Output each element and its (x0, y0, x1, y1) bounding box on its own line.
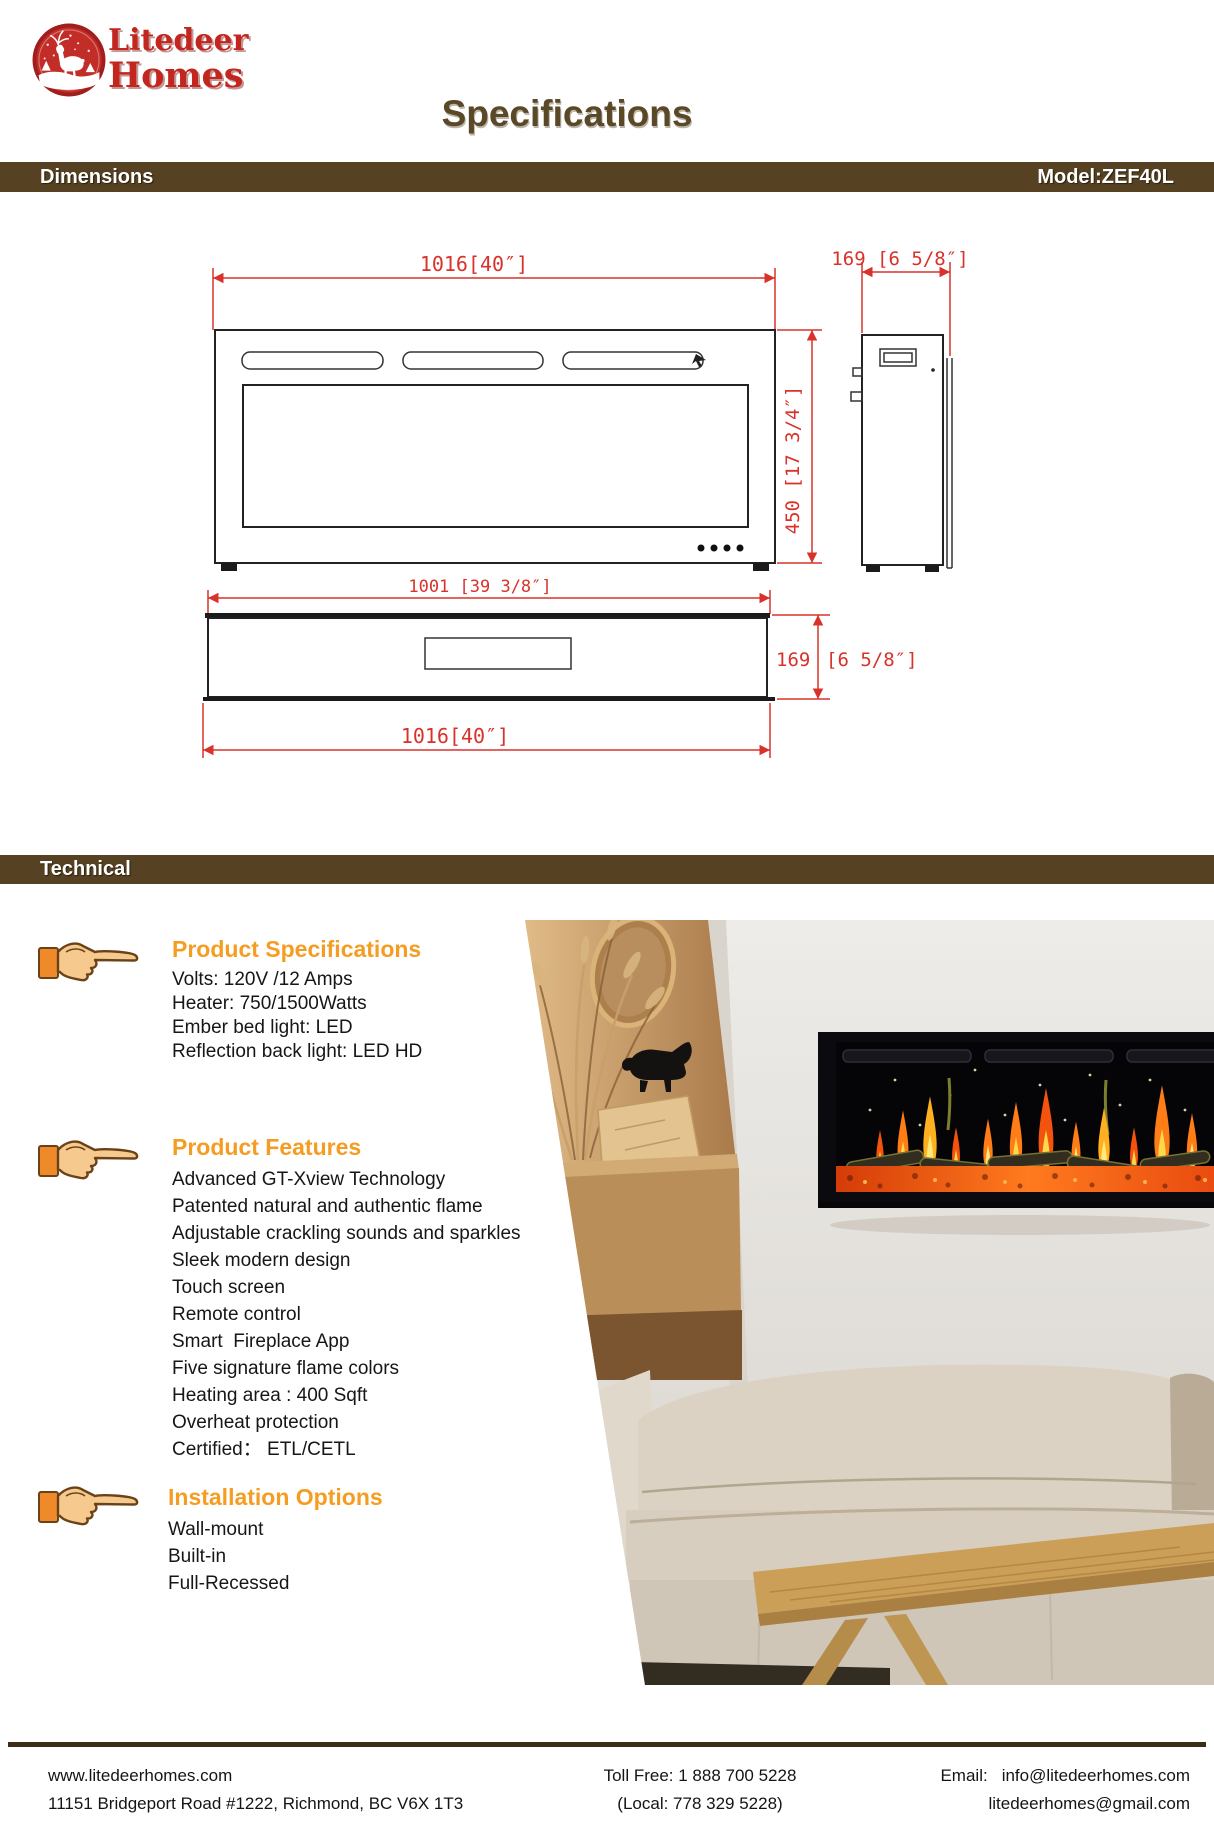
list-item: Built-in (168, 1543, 588, 1570)
footer-local: (Local: 778 329 5228) (540, 1790, 860, 1818)
page-title: Specifications (367, 93, 767, 135)
footer-contact-left: www.litedeerhomes.com 11151 Bridgeport R… (48, 1762, 463, 1818)
section-product-specifications: Product Specifications Volts: 120V /12 A… (172, 936, 592, 1064)
fireplace-vents (843, 1050, 1214, 1062)
footer-divider (8, 1742, 1206, 1747)
footer-website: www.litedeerhomes.com (48, 1762, 463, 1790)
model-number: Model:ZEF40L (1037, 162, 1174, 192)
list-item: Advanced GT-Xview Technology (172, 1166, 592, 1193)
footer-email-1: info@litedeerhomes.com (1002, 1766, 1190, 1785)
list-item: Remote control (172, 1301, 592, 1328)
control-dots (698, 545, 744, 552)
technical-bar: Technical (0, 855, 1214, 884)
logo-line1: Litedeer (108, 26, 248, 56)
dim-bottom-inner-width: 1001 [39 3/8″] (408, 577, 551, 597)
section-title: Product Features (172, 1134, 592, 1161)
dim-front-height: 450 [17 3/4″] (782, 386, 804, 535)
list-item: Reflection back light: LED HD (172, 1040, 592, 1064)
footer-toll-free: Toll Free: 1 888 700 5228 (540, 1762, 860, 1790)
side-view: 169 [6 5/8″] (831, 248, 968, 572)
technical-bar-label: Technical (40, 855, 131, 884)
list-item: Sleek modern design (172, 1247, 592, 1274)
litedeer-logo-icon (31, 20, 107, 100)
list-item: Certified： ETL/CETL (172, 1436, 592, 1463)
list-item: Heating area : 400 Sqft (172, 1382, 592, 1409)
pointing-hand-icon (36, 938, 140, 990)
dimensions-bar-label: Dimensions (40, 162, 153, 192)
dim-side-depth: 169 [6 5/8″] (831, 248, 968, 270)
spec-sheet-page: Litedeer Homes Specifications Dimensions… (0, 0, 1214, 1839)
front-view: 1016[40″] 450 [17 3/4″] (213, 252, 822, 571)
section-title: Product Specifications (172, 936, 592, 963)
dim-bottom-depth-bracket: [6 5/8″] (826, 649, 918, 671)
list-item: Wall-mount (168, 1516, 588, 1543)
list-item: Touch screen (172, 1274, 592, 1301)
pointing-hand-icon (36, 1482, 140, 1534)
list-item: Ember bed light: LED (172, 1016, 592, 1040)
pointing-hand-icon (36, 1136, 140, 1188)
list-item: Patented natural and authentic flame (172, 1193, 592, 1220)
bottom-view: 1001 [39 3/8″] 169 [6 5/8″] 1016[40″] (203, 577, 918, 758)
section-product-features: Product Features Advanced GT-Xview Techn… (172, 1134, 592, 1463)
fireplace-photo (818, 1032, 1214, 1235)
dimensions-bar: Dimensions Model:ZEF40L (0, 162, 1214, 192)
cursor-mark (692, 354, 706, 367)
footer-emails: Email:info@litedeerhomes.com litedeerhom… (940, 1762, 1190, 1818)
spec-list: Volts: 120V /12 AmpsHeater: 750/1500Watt… (172, 968, 592, 1064)
technical-drawing: 1016[40″] 450 [17 3/4″] 169 [6 5/8″] (0, 200, 1214, 760)
footer-email-2: litedeerhomes@gmail.com (940, 1790, 1190, 1818)
list-item: Overheat protection (172, 1409, 592, 1436)
footer-address: 11151 Bridgeport Road #1222, Richmond, B… (48, 1790, 463, 1818)
logo-wordmark: Litedeer Homes (108, 26, 248, 93)
installation-list: Wall-mountBuilt-inFull-Recessed (168, 1516, 588, 1597)
feature-list: Advanced GT-Xview TechnologyPatented nat… (172, 1166, 592, 1463)
ember-bed (836, 1166, 1214, 1192)
section-installation-options: Installation Options Wall-mountBuilt-inF… (168, 1484, 588, 1597)
list-item: Smart Fireplace App (172, 1328, 592, 1355)
list-item: Volts: 120V /12 Amps (172, 968, 592, 992)
dim-bottom-depth-value: 169 (776, 649, 810, 671)
list-item: Full-Recessed (168, 1570, 588, 1597)
list-item: Adjustable crackling sounds and sparkles (172, 1220, 592, 1247)
dim-front-width: 1016[40″] (420, 252, 528, 276)
logo-line2: Homes (108, 58, 248, 93)
list-item: Five signature flame colors (172, 1355, 592, 1382)
list-item: Heater: 750/1500Watts (172, 992, 592, 1016)
section-title: Installation Options (168, 1484, 588, 1511)
footer-email-label: Email: (940, 1766, 987, 1785)
footer-phones: Toll Free: 1 888 700 5228 (Local: 778 32… (540, 1762, 860, 1818)
dim-bottom-width: 1016[40″] (401, 724, 509, 748)
